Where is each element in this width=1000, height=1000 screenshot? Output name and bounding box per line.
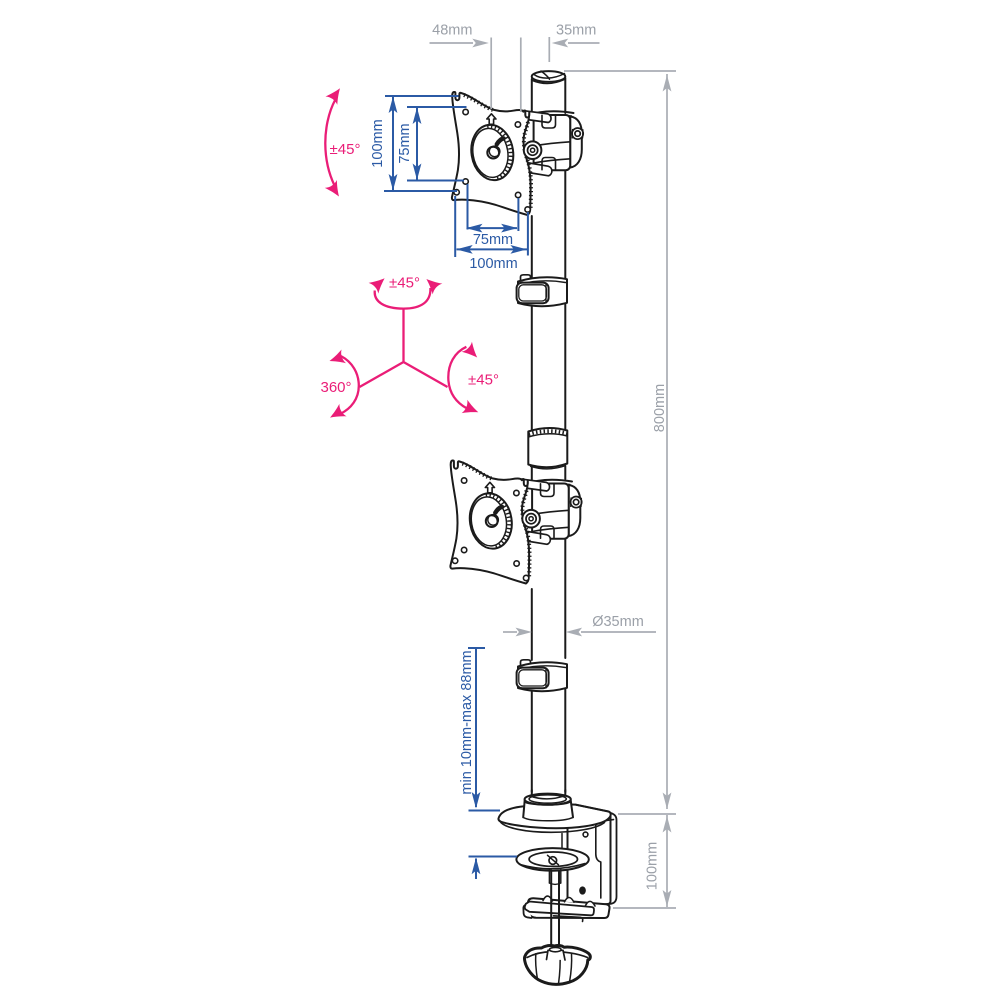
svg-text:75mm: 75mm <box>473 232 513 248</box>
svg-text:±45°: ±45° <box>389 275 420 292</box>
svg-text:±45°: ±45° <box>330 141 361 158</box>
svg-text:360°: 360° <box>320 379 351 396</box>
svg-text:100mm: 100mm <box>370 119 386 167</box>
svg-text:48mm: 48mm <box>432 22 472 38</box>
svg-text:100mm: 100mm <box>469 256 517 272</box>
svg-text:800mm: 800mm <box>652 384 668 432</box>
svg-text:35mm: 35mm <box>556 22 596 38</box>
svg-text:min 10mm-max 88mm: min 10mm-max 88mm <box>459 650 475 794</box>
svg-text:Ø35mm: Ø35mm <box>592 614 644 630</box>
svg-text:75mm: 75mm <box>397 123 413 163</box>
svg-text:100mm: 100mm <box>645 842 661 890</box>
svg-text:±45°: ±45° <box>468 372 499 389</box>
